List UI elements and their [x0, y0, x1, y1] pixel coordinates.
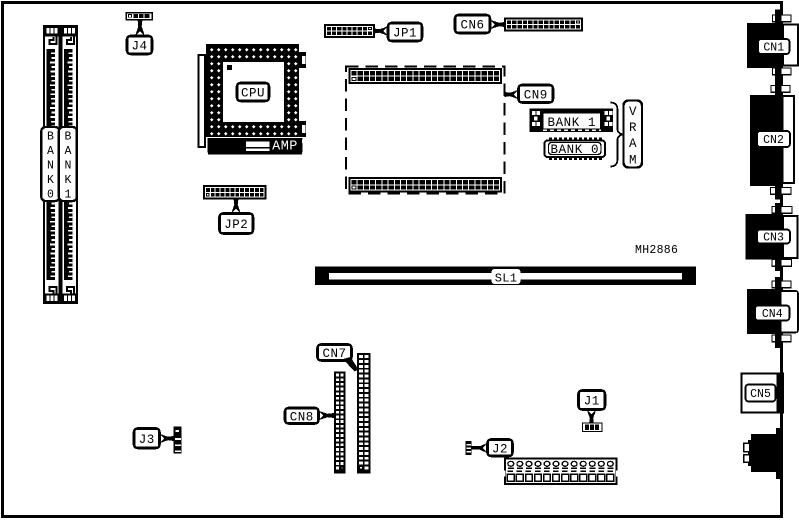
svg-text:A: A [64, 145, 71, 158]
svg-text:J2: J2 [492, 442, 508, 456]
svg-text:JP1: JP1 [393, 27, 417, 41]
svg-text:CN7: CN7 [322, 347, 346, 361]
svg-text:V: V [629, 105, 637, 119]
svg-text:CPU: CPU [241, 87, 265, 101]
svg-text:N: N [64, 160, 71, 173]
svg-text:CN8: CN8 [290, 410, 314, 424]
svg-text:0: 0 [47, 189, 54, 202]
svg-text:BANK 1: BANK 1 [547, 116, 596, 130]
svg-text:MH2886: MH2886 [635, 244, 678, 257]
svg-text:J4: J4 [131, 40, 147, 54]
svg-text:CN1: CN1 [763, 42, 784, 55]
svg-text:K: K [64, 174, 71, 187]
svg-text:JP2: JP2 [224, 218, 248, 232]
svg-text:B: B [47, 131, 54, 144]
svg-text:1: 1 [64, 189, 71, 202]
svg-text:CN4: CN4 [762, 308, 783, 321]
svg-text:CN6: CN6 [460, 19, 484, 33]
svg-text:BANK 0: BANK 0 [550, 143, 599, 157]
svg-text:CN9: CN9 [524, 88, 548, 102]
svg-text:K: K [47, 174, 54, 187]
svg-text:CN5: CN5 [750, 388, 771, 401]
svg-text:B: B [64, 131, 71, 144]
svg-text:A: A [629, 137, 637, 151]
svg-text:N: N [47, 160, 54, 173]
svg-text:SL1: SL1 [495, 271, 518, 285]
svg-text:AMP: AMP [272, 140, 298, 155]
svg-text:CN2: CN2 [763, 134, 784, 147]
svg-text:M: M [629, 153, 637, 167]
svg-text:R: R [629, 121, 637, 135]
svg-text:A: A [47, 145, 54, 158]
svg-text:CN3: CN3 [763, 232, 784, 245]
svg-text:J1: J1 [584, 395, 600, 409]
svg-text:J3: J3 [139, 433, 155, 447]
